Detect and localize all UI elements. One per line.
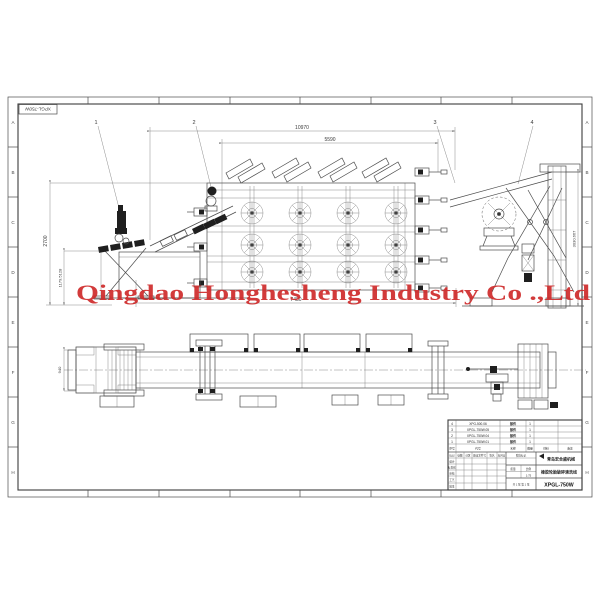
rev-header: 更改文件号 bbox=[473, 453, 486, 457]
part-seq: 3 bbox=[451, 428, 453, 432]
dim-body-length: 5590 bbox=[324, 137, 335, 143]
scale-value: 1:75 bbox=[526, 474, 532, 478]
drawing-sheet: A B C D E F G H A B C D E F G H XPGL-750… bbox=[0, 0, 600, 600]
part-name: 部件 bbox=[510, 427, 517, 432]
sign-label: 工艺 bbox=[449, 478, 455, 482]
machine-body bbox=[187, 158, 447, 292]
scale-label: 比例 bbox=[526, 467, 532, 471]
part-code: XPG-500.06 bbox=[469, 422, 487, 426]
part-name: 部件 bbox=[510, 433, 517, 438]
parts-header-seq: 序号 bbox=[449, 447, 455, 451]
row-letter: A bbox=[11, 120, 15, 125]
row-letter: F bbox=[12, 370, 15, 375]
row-letter: C bbox=[585, 220, 589, 225]
callout-1: 1 bbox=[94, 120, 97, 126]
dimension-conveyor-width: 940 bbox=[57, 350, 76, 391]
sign-label: 设计 bbox=[449, 460, 455, 464]
row-letter: B bbox=[585, 170, 588, 175]
parts-list: 4 XPG-500.06 部件 1 3 XPGL-750W.05 部件 1 2 … bbox=[449, 421, 573, 451]
part-qty: 1 bbox=[529, 440, 531, 444]
part-qty: 1 bbox=[529, 428, 531, 432]
part-name: 部件 bbox=[510, 421, 517, 426]
parts-header-name: 名称 bbox=[510, 447, 516, 451]
parts-header-qty: 数量 bbox=[527, 447, 533, 451]
corner-label-box: XPGL-750W bbox=[19, 105, 57, 115]
row-letter: A bbox=[585, 120, 589, 125]
blueprint-page: A B C D E F G H A B C D E F G H XPGL-750… bbox=[0, 0, 600, 600]
parts-header-material: 材料 bbox=[543, 447, 549, 451]
side-view-drawing: 940 bbox=[57, 334, 586, 409]
company-name: 青岛宏合盛机械 bbox=[547, 456, 575, 462]
row-letter: B bbox=[11, 170, 14, 175]
title-block-texts: 标记 处数 分区 更改文件号 签名 年月日 设计 标准化 审核 工艺 批准 阶段… bbox=[448, 453, 577, 488]
rev-header: 签名 bbox=[489, 453, 495, 457]
parts-header-code: 代号 bbox=[475, 447, 481, 451]
part-code: XPGL-750W.04 bbox=[467, 434, 489, 438]
part-code: XPGL-750W.05 bbox=[467, 428, 489, 432]
part-seq: 2 bbox=[451, 434, 453, 438]
callout-2: 2 bbox=[192, 120, 195, 126]
callout-4: 4 bbox=[530, 120, 533, 126]
row-letter: H bbox=[11, 470, 14, 475]
dim-overall-length: 10970 bbox=[295, 125, 309, 131]
rev-header: 标记 bbox=[449, 453, 455, 457]
row-letters-left: A B C D E F G H bbox=[11, 120, 15, 475]
product-name: 橡胶轮胎破碎清洗线 bbox=[541, 469, 577, 475]
part-name: 部件 bbox=[510, 439, 517, 444]
row-letter: H bbox=[585, 470, 588, 475]
parts-header-remark: 备注 bbox=[567, 447, 573, 451]
watermark-text: Qingdao Honghesheng Industry Co .,Ltd bbox=[76, 280, 590, 305]
corner-label: XPGL-750W bbox=[24, 106, 50, 111]
part-seq: 1 bbox=[451, 440, 453, 444]
part-qty: 1 bbox=[529, 422, 531, 426]
part-qty: 1 bbox=[529, 434, 531, 438]
row-letter: D bbox=[11, 270, 15, 275]
callout-3: 3 bbox=[433, 120, 436, 126]
mass-label: 质量 bbox=[510, 467, 516, 471]
company-logo-icon bbox=[539, 454, 544, 460]
dim-conveyor-width: 940 bbox=[57, 366, 62, 373]
row-letter: G bbox=[585, 420, 589, 425]
dim-feed-lower-height: 1179.5128 bbox=[58, 268, 63, 287]
row-letter: C bbox=[11, 220, 15, 225]
row-letter: G bbox=[11, 420, 15, 425]
dim-feed-height: 2700 bbox=[43, 235, 49, 246]
row-letter: E bbox=[11, 320, 14, 325]
stage-label: 阶段标记 bbox=[516, 454, 527, 458]
drawing-number: XPGL-750W bbox=[544, 483, 574, 489]
title-block: 4 XPG-500.06 部件 1 3 XPGL-750W.05 部件 1 2 … bbox=[448, 420, 582, 490]
sheet-info: 共 1 张 第 1 张 bbox=[513, 483, 530, 487]
sign-label: 审核 bbox=[449, 472, 455, 476]
sign-label: 批准 bbox=[449, 485, 455, 489]
callout-leaders: 1 2 3 4 bbox=[94, 120, 533, 212]
sign-label: 标准化 bbox=[448, 466, 456, 470]
row-letter: F bbox=[586, 370, 589, 375]
dimension-overall-length: 10970 bbox=[150, 125, 455, 240]
rev-header: 年月日 bbox=[498, 453, 506, 457]
dim-discharge-height: 3030.667 bbox=[572, 230, 577, 247]
rev-header: 分区 bbox=[465, 453, 471, 457]
row-letter: D bbox=[585, 270, 589, 275]
part-code: XPGL-750W.01 bbox=[467, 440, 489, 444]
row-letter: E bbox=[585, 320, 588, 325]
part-seq: 4 bbox=[451, 422, 453, 426]
rev-header: 处数 bbox=[457, 453, 463, 457]
